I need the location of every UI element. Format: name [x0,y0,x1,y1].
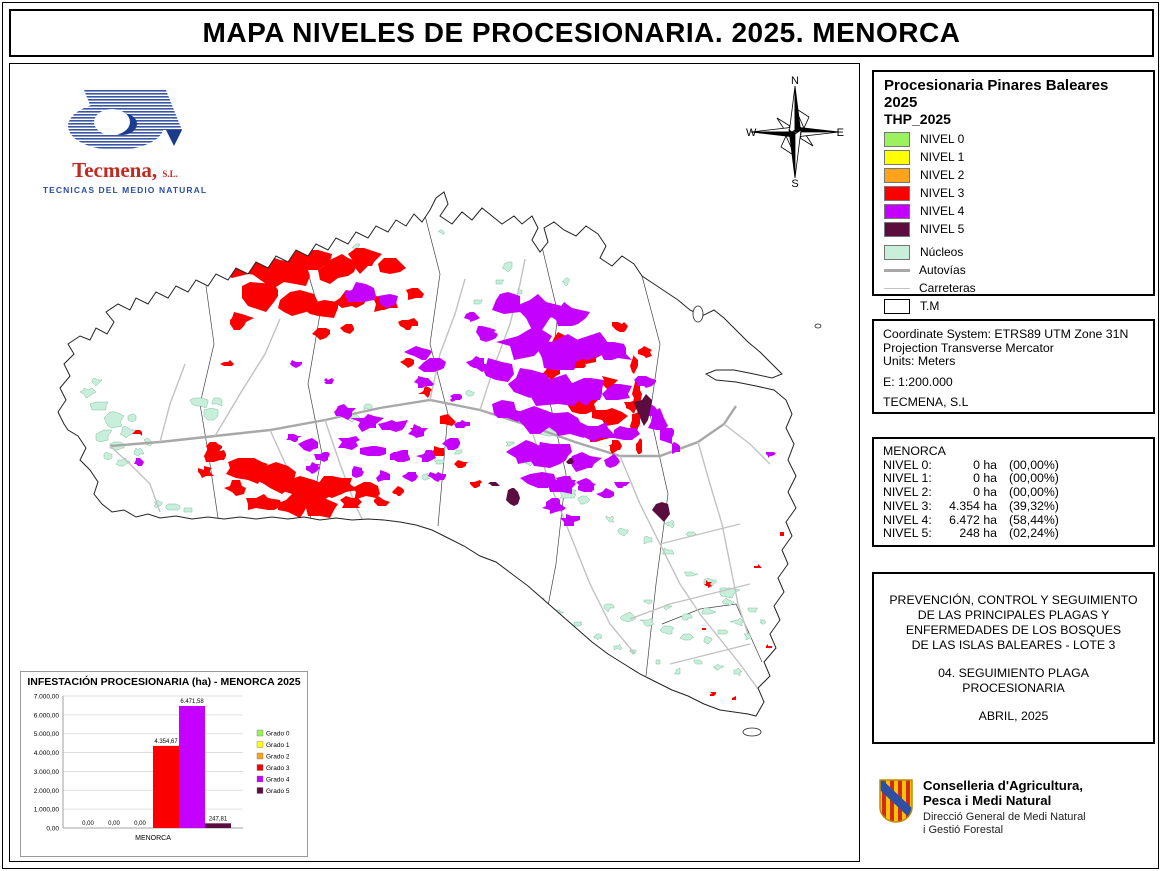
svg-text:MENORCA: MENORCA [135,835,171,842]
legend-item-carreteras: Carreteras [884,279,1143,297]
nivel-5-label: NIVEL 5 [920,222,964,236]
stats-row-nivel-5: NIVEL 5:248 ha(02,24%) [883,527,1144,541]
project-line: PREVENCIÓN, CONTROL Y SEGUIMIENTO [888,593,1139,608]
balearic-shield-icon [878,778,914,824]
svg-text:7.000,00: 7.000,00 [34,694,60,701]
project-line: DE LAS PRINCIPALES PLAGAS Y [888,608,1139,623]
nucleos-swatch [884,245,910,260]
autovias-line-swatch [884,269,910,272]
page-title: MAPA NIVELES DE PROCESIONARIA. 2025. MEN… [203,17,961,49]
svg-text:Grado 1: Grado 1 [266,742,290,749]
stats-row-nivel-0: NIVEL 0:0 ha(00,00%) [883,459,1144,473]
nivel-1-label: NIVEL 1 [920,150,964,164]
svg-text:4.000,00: 4.000,00 [34,750,60,757]
legend-item-tm: T.M [884,297,1143,315]
legend-item-nivel-4: NIVEL 4 [884,202,1143,220]
coordinate-box: Coordinate System: ETRS89 UTM Zone 31N P… [872,319,1155,414]
project-line: ENFERMEDADES DE LOS BOSQUES [888,623,1139,638]
map-sheet: { "title": "MAPA NIVELES DE PROCESIONARI… [0,0,1161,871]
legend-item-nivel-0: NIVEL 0 [884,130,1143,148]
nivel-0-swatch [884,132,910,147]
svg-text:6.000,00: 6.000,00 [34,712,60,719]
stats-row-nivel-3: NIVEL 3:4.354 ha(39,32%) [883,500,1144,514]
tecmena-tagline: TECNICAS DEL MEDIO NATURAL [40,185,210,195]
project-subtitle: 04. SEGUIMIENTO PLAGA PROCESIONARIA [888,666,1139,696]
stats-row-nivel-4: NIVEL 4:6.472 ha(58,44%) [883,514,1144,528]
coord-projection: Projection Transverse Mercator [883,342,1144,356]
stats-rows: NIVEL 0:0 ha(00,00%)NIVEL 1:0 ha(00,00%)… [883,459,1144,541]
compass-rose: N S W E [743,76,847,193]
stats-panel: MENORCA NIVEL 0:0 ha(00,00%)NIVEL 1:0 ha… [872,437,1155,547]
legend-level-list: NIVEL 0NIVEL 1NIVEL 2NIVEL 3NIVEL 4NIVEL… [884,130,1143,238]
svg-text:5.000,00: 5.000,00 [34,731,60,738]
legend-layer-name: THP_2025 [884,111,1143,127]
compass-s: S [791,178,798,188]
bar-grado-4 [179,706,205,828]
svg-text:Grado 4: Grado 4 [266,777,290,784]
tecmena-logo-mark [50,84,200,156]
svg-text:Grado 0: Grado 0 [266,731,290,738]
bar-grado-5 [205,823,231,828]
nivel-4-swatch [884,204,910,219]
svg-text:1.000,00: 1.000,00 [34,807,60,814]
title-bar: MAPA NIVELES DE PROCESIONARIA. 2025. MEN… [9,9,1154,57]
legend-item-nivel-3: NIVEL 3 [884,184,1143,202]
nivel-0-label: NIVEL 0 [920,132,964,146]
nivel-2-label: NIVEL 2 [920,168,964,182]
compass-n: N [791,76,799,87]
nivel-5-swatch [884,222,910,237]
chart-title: INFESTACIÓN PROCESIONARIA (ha) - MENORCA… [21,676,307,688]
svg-text:6.471,58: 6.471,58 [180,699,204,705]
stats-row-nivel-2: NIVEL 2:0 ha(00,00%) [883,486,1144,500]
svg-text:3.000,00: 3.000,00 [34,769,60,776]
legend-item-nivel-5: NIVEL 5 [884,220,1143,238]
infestation-chart: INFESTACIÓN PROCESIONARIA (ha) - MENORCA… [20,671,308,857]
org-text: Conselleria d'Agricultura, Pesca i Medi … [923,778,1086,837]
svg-text:Grado 3: Grado 3 [266,765,290,772]
legend-title: Procesionaria Pinares Baleares 2025 [884,77,1143,111]
project-date: ABRIL, 2025 [888,709,1139,724]
svg-text:0,00: 0,00 [82,821,94,827]
legend-item-nivel-2: NIVEL 2 [884,166,1143,184]
map-scale: E: 1:200.000 [883,376,1144,390]
stats-row-nivel-1: NIVEL 1:0 ha(00,00%) [883,472,1144,486]
compass-e: E [837,127,844,139]
nivel-2-swatch [884,168,910,183]
tecmena-logo: Tecmena, S.L. TECNICAS DEL MEDIO NATURAL [40,84,210,195]
svg-text:0,00: 0,00 [134,821,146,827]
company-name: TECMENA, S.L [883,396,1144,410]
legend-item-nivel-1: NIVEL 1 [884,148,1143,166]
coord-units: Units: Meters [883,355,1144,369]
chart-plot: 0,001.000,002.000,003.000,004.000,005.00… [21,672,305,854]
compass-w: W [746,127,757,139]
svg-text:4.354,67: 4.354,67 [154,739,178,745]
svg-text:Grado 5: Grado 5 [266,788,290,795]
stats-title: MENORCA [883,445,1144,459]
nivel-4-label: NIVEL 4 [920,204,964,218]
svg-text:0,00: 0,00 [108,821,120,827]
coord-system: Coordinate System: ETRS89 UTM Zone 31N [883,328,1144,342]
org-department: Direcció General de Medi Natural i Gesti… [923,811,1086,837]
nivel-3-label: NIVEL 3 [920,186,964,200]
legend-item-autovias: Autovías [884,261,1143,279]
project-line: DE LAS ISLAS BALEARES - LOTE 3 [888,638,1139,653]
svg-text:0,00: 0,00 [46,826,59,833]
svg-text:Grado 2: Grado 2 [266,754,290,761]
project-info-box: PREVENCIÓN, CONTROL Y SEGUIMIENTO DE LAS… [872,572,1155,744]
carreteras-line-swatch [884,288,910,289]
map-panel: Tecmena, S.L. TECNICAS DEL MEDIO NATURAL… [9,63,860,862]
conselleria-logo: Conselleria d'Agricultura, Pesca i Medi … [878,778,1154,837]
nivel-1-swatch [884,150,910,165]
nivel-3-swatch [884,186,910,201]
svg-text:2.000,00: 2.000,00 [34,788,60,795]
tecmena-name: Tecmena, S.L. [40,161,210,183]
tm-swatch [884,299,910,314]
svg-text:247,81: 247,81 [209,816,228,822]
org-name: Conselleria d'Agricultura, Pesca i Medi … [923,778,1086,808]
legend-item-nucleos: Núcleos [884,243,1143,261]
legend-panel: Procesionaria Pinares Baleares 2025 THP_… [872,70,1155,296]
bar-grado-3 [153,746,179,828]
